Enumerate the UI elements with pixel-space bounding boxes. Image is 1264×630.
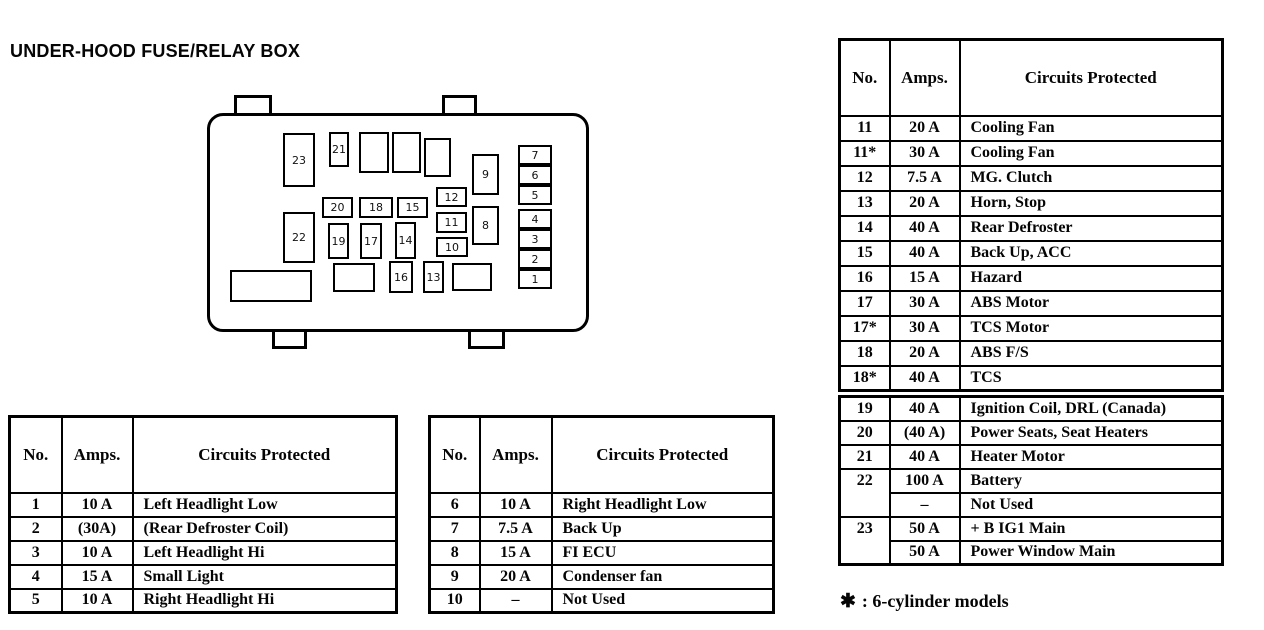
table-cell: Left Headlight Hi <box>133 541 397 565</box>
table-cell: 30 A <box>890 141 960 166</box>
fuse-box-1: 1 <box>518 269 552 289</box>
fuse-box-18: 18 <box>359 197 393 218</box>
table-row: 127.5 AMG. Clutch <box>840 166 1223 191</box>
table-cell: 15 A <box>890 266 960 291</box>
table-cell: TCS Motor <box>960 316 1223 341</box>
table-cell: 4 <box>10 565 62 589</box>
table-row: 20(40 A)Power Seats, Seat Heaters <box>840 421 1223 445</box>
table-cell: 40 A <box>890 445 960 469</box>
table-row: 2140 AHeater Motor <box>840 445 1223 469</box>
table-cell: Condenser fan <box>552 565 774 589</box>
table-cell: (30A) <box>62 517 133 541</box>
fuse-box-9: 9 <box>472 154 499 195</box>
table-row: 310 ALeft Headlight Hi <box>10 541 397 565</box>
fuse-box-2: 2 <box>518 249 552 269</box>
footnote: ✱: 6-cylinder models <box>840 590 1009 613</box>
table-cell: 30 A <box>890 291 960 316</box>
table-cell: 10 A <box>62 589 133 613</box>
table-cell: 2 <box>10 517 62 541</box>
table-cell: 50 A <box>890 517 960 541</box>
table-cell: 20 A <box>890 191 960 216</box>
relay-box <box>392 132 421 173</box>
fuse-box-22: 22 <box>283 212 315 263</box>
table-cell: 100 A <box>890 469 960 493</box>
table-cell: 20 A <box>480 565 552 589</box>
fuse-table-1-5: No. Amps. Circuits Protected 110 ALeft H… <box>8 415 398 614</box>
table-cell: 10 A <box>480 493 552 517</box>
table-row: 2(30A)(Rear Defroster Coil) <box>10 517 397 541</box>
table-cell: 40 A <box>890 216 960 241</box>
header-no: No. <box>10 417 62 493</box>
table-cell: 16 <box>840 266 890 291</box>
fuse-box-20: 20 <box>322 197 353 218</box>
table-cell: 40 A <box>890 366 960 391</box>
table-cell: 1 <box>10 493 62 517</box>
header-amps: Amps. <box>890 40 960 116</box>
fuse-box-6: 6 <box>518 165 552 185</box>
table-cell: FI ECU <box>552 541 774 565</box>
table-row: 2350 A+ B IG1 Main <box>840 517 1223 541</box>
mounting-tab <box>272 329 307 349</box>
table-cell: 12 <box>840 166 890 191</box>
fuse-box-diagram: 23 21 9 20 18 15 12 11 8 10 22 19 17 14 … <box>195 93 595 355</box>
table-row: 1820 AABS F/S <box>840 341 1223 366</box>
table-cell: 14 <box>840 216 890 241</box>
fuse-box-3: 3 <box>518 229 552 249</box>
fuse-box-23: 23 <box>283 133 315 187</box>
table-row: 110 ALeft Headlight Low <box>10 493 397 517</box>
table-row: 77.5 ABack Up <box>430 517 774 541</box>
table-cell: (Rear Defroster Coil) <box>133 517 397 541</box>
fuse-box-5: 5 <box>518 185 552 205</box>
fuse-box-8: 8 <box>472 206 499 245</box>
relay-box <box>424 138 451 177</box>
table-row: 1540 ABack Up, ACC <box>840 241 1223 266</box>
table-header-row: No. Amps. Circuits Protected <box>10 417 397 493</box>
fuse-box-11: 11 <box>436 212 467 233</box>
table-cell: 40 A <box>890 397 960 421</box>
table-cell: 15 A <box>480 541 552 565</box>
table-cell: ABS F/S <box>960 341 1223 366</box>
table-cell: Not Used <box>552 589 774 613</box>
fuse-box-7: 7 <box>518 145 552 165</box>
table-cell: Battery <box>960 469 1223 493</box>
table-cell: + B IG1 Main <box>960 517 1223 541</box>
table-cell: 40 A <box>890 241 960 266</box>
fuse-table-11-18: No. Amps. Circuits Protected 1120 ACooli… <box>838 38 1224 392</box>
asterisk-icon: ✱ <box>840 591 856 612</box>
table-row: 1320 AHorn, Stop <box>840 191 1223 216</box>
table-row: 1120 ACooling Fan <box>840 116 1223 141</box>
table-cell: Back Up <box>552 517 774 541</box>
table-cell: 17 <box>840 291 890 316</box>
header-circuits: Circuits Protected <box>960 40 1223 116</box>
table-cell: 10 A <box>62 541 133 565</box>
table-cell: Cooling Fan <box>960 141 1223 166</box>
table-cell: Small Light <box>133 565 397 589</box>
table-cell: 7.5 A <box>890 166 960 191</box>
table-row: 815 AFI ECU <box>430 541 774 565</box>
table-cell: 10 A <box>62 493 133 517</box>
table-row: 17*30 ATCS Motor <box>840 316 1223 341</box>
table-row: 50 APower Window Main <box>840 541 1223 565</box>
table-cell: 11* <box>840 141 890 166</box>
header-no: No. <box>840 40 890 116</box>
table-row: 1440 ARear Defroster <box>840 216 1223 241</box>
table-cell: 8 <box>430 541 480 565</box>
table-row: 10–Not Used <box>430 589 774 613</box>
table-cell: Back Up, ACC <box>960 241 1223 266</box>
table-cell: 6 <box>430 493 480 517</box>
table-row: 610 ARight Headlight Low <box>430 493 774 517</box>
fuse-table-6-10: No. Amps. Circuits Protected 610 ARight … <box>428 415 775 614</box>
header-no: No. <box>430 417 480 493</box>
fuse-box-16: 16 <box>389 261 413 293</box>
relay-box <box>452 263 492 291</box>
fuse-box-10: 10 <box>436 237 468 257</box>
table-cell: 22 <box>840 469 890 517</box>
header-amps: Amps. <box>62 417 133 493</box>
table-cell: 23 <box>840 517 890 565</box>
table-row: 18*40 ATCS <box>840 366 1223 391</box>
mounting-tab <box>468 329 505 349</box>
fuse-box-4: 4 <box>518 209 552 229</box>
table-row: 510 ARight Headlight Hi <box>10 589 397 613</box>
table-cell: Heater Motor <box>960 445 1223 469</box>
table-cell: 7 <box>430 517 480 541</box>
table-cell: TCS <box>960 366 1223 391</box>
header-circuits: Circuits Protected <box>133 417 397 493</box>
table-cell: Right Headlight Low <box>552 493 774 517</box>
table-cell: 10 <box>430 589 480 613</box>
table-cell: Hazard <box>960 266 1223 291</box>
table-row: 11*30 ACooling Fan <box>840 141 1223 166</box>
fuse-box-19: 19 <box>328 223 349 259</box>
table-row: 22100 ABattery <box>840 469 1223 493</box>
fuse-box-15: 15 <box>397 197 428 218</box>
relay-box <box>333 263 375 292</box>
table-cell: 18* <box>840 366 890 391</box>
relay-box <box>359 132 389 173</box>
table-cell: 13 <box>840 191 890 216</box>
table-cell: (40 A) <box>890 421 960 445</box>
fuse-box-14: 14 <box>395 222 416 259</box>
fuse-table-19-23: 1940 AIgnition Coil, DRL (Canada)20(40 A… <box>838 395 1224 566</box>
table-cell: Rear Defroster <box>960 216 1223 241</box>
table-row: 1940 AIgnition Coil, DRL (Canada) <box>840 397 1223 421</box>
table-cell: Right Headlight Hi <box>133 589 397 613</box>
fuse-box-12: 12 <box>436 187 467 207</box>
header-circuits: Circuits Protected <box>552 417 774 493</box>
table-cell: 20 <box>840 421 890 445</box>
table-cell: 7.5 A <box>480 517 552 541</box>
table-cell: 15 <box>840 241 890 266</box>
table-row: –Not Used <box>840 493 1223 517</box>
table-cell: 50 A <box>890 541 960 565</box>
table-cell: Power Seats, Seat Heaters <box>960 421 1223 445</box>
table-cell: ABS Motor <box>960 291 1223 316</box>
table-row: 1615 AHazard <box>840 266 1223 291</box>
table-cell: 9 <box>430 565 480 589</box>
footnote-text: : 6-cylinder models <box>862 591 1009 611</box>
table-cell: Power Window Main <box>960 541 1223 565</box>
table-cell: – <box>480 589 552 613</box>
table-cell: Cooling Fan <box>960 116 1223 141</box>
table-cell: 18 <box>840 341 890 366</box>
table-header-row: No. Amps. Circuits Protected <box>840 40 1223 116</box>
table-cell: 17* <box>840 316 890 341</box>
table-header-row: No. Amps. Circuits Protected <box>430 417 774 493</box>
table-cell: 3 <box>10 541 62 565</box>
fuse-box-13: 13 <box>423 261 444 293</box>
table-row: 415 ASmall Light <box>10 565 397 589</box>
table-cell: 21 <box>840 445 890 469</box>
table-cell: 20 A <box>890 116 960 141</box>
table-cell: 30 A <box>890 316 960 341</box>
table-cell: Ignition Coil, DRL (Canada) <box>960 397 1223 421</box>
table-cell: 15 A <box>62 565 133 589</box>
table-cell: 11 <box>840 116 890 141</box>
table-cell: 20 A <box>890 341 960 366</box>
table-cell: Left Headlight Low <box>133 493 397 517</box>
fuse-box-21: 21 <box>329 132 349 167</box>
fuse-box-17: 17 <box>360 223 382 259</box>
relay-box <box>230 270 312 302</box>
table-cell: Horn, Stop <box>960 191 1223 216</box>
table-cell: – <box>890 493 960 517</box>
table-row: 920 ACondenser fan <box>430 565 774 589</box>
table-cell: 19 <box>840 397 890 421</box>
table-row: 1730 AABS Motor <box>840 291 1223 316</box>
table-cell: 5 <box>10 589 62 613</box>
table-cell: MG. Clutch <box>960 166 1223 191</box>
header-amps: Amps. <box>480 417 552 493</box>
table-cell: Not Used <box>960 493 1223 517</box>
page-title: UNDER-HOOD FUSE/RELAY BOX <box>10 41 300 62</box>
